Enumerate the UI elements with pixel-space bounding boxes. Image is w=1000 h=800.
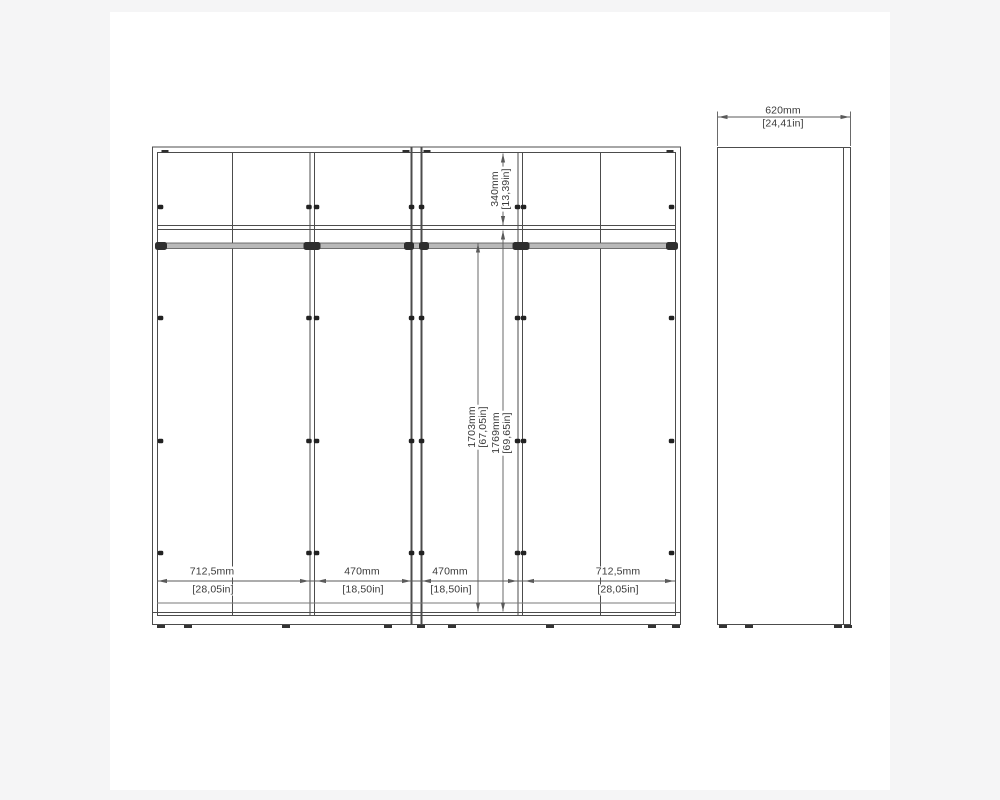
dim-width-1-mm: 712,5mm — [188, 566, 236, 577]
front-shelf-divider — [157, 226, 676, 230]
dim-top-section-in: [13,39in] — [501, 168, 512, 209]
dim-width-2-in: [18,50in] — [340, 584, 385, 595]
front-outer-frame — [152, 147, 681, 625]
dim-interior-height-mm: 1703mm — [467, 406, 478, 447]
dim-top-section-mm: 340mm — [490, 168, 501, 209]
dim-width-3-mm: 470mm — [430, 566, 470, 577]
dim-top-section: 340mm [13,39in] — [489, 166, 513, 211]
dim-door-height: 1769mm [69,65in] — [490, 410, 514, 455]
dim-width-3-in: [18,50in] — [428, 584, 473, 595]
page: { "drawing": { "title": "wardrobe-techni… — [0, 0, 1000, 800]
dim-width-1-in: [28,05in] — [190, 584, 235, 595]
side-feet — [719, 625, 852, 628]
dim-depth-in: [24,41in] — [760, 119, 805, 130]
dim-door-height-in: [69,65in] — [502, 412, 513, 453]
front-view — [152, 147, 681, 629]
side-view — [718, 148, 853, 629]
technical-drawing-svg — [0, 0, 1000, 800]
front-hanging-rail — [155, 242, 678, 250]
dim-interior-height: 1703mm [67,05in] — [466, 404, 490, 449]
dim-width-4-mm: 712,5mm — [594, 566, 642, 577]
dim-width-2-mm: 470mm — [342, 566, 382, 577]
front-plinth — [152, 603, 681, 625]
dim-width-4-in: [28,05in] — [595, 584, 640, 595]
front-feet — [157, 625, 680, 628]
front-partitions — [233, 153, 601, 616]
dim-interior-height-in: [67,05in] — [478, 406, 489, 447]
front-hinge-dots — [158, 205, 675, 556]
dim-depth-mm: 620mm — [763, 105, 803, 116]
